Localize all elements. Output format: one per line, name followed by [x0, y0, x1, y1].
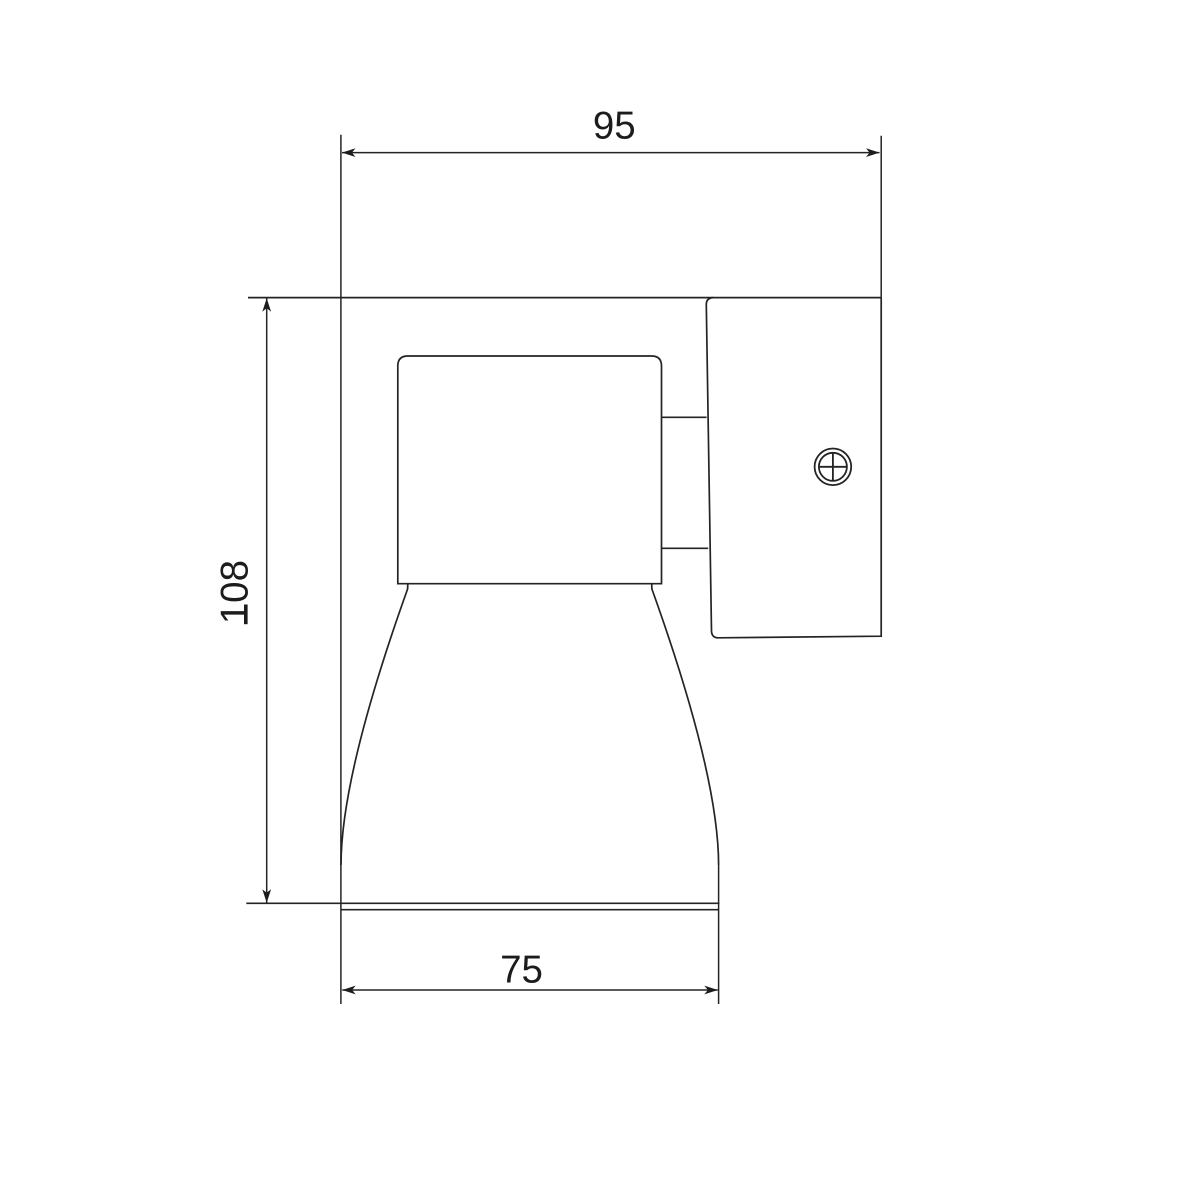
svg-text:75: 75 [500, 949, 543, 992]
svg-text:108: 108 [214, 560, 257, 624]
svg-text:95: 95 [593, 104, 636, 147]
